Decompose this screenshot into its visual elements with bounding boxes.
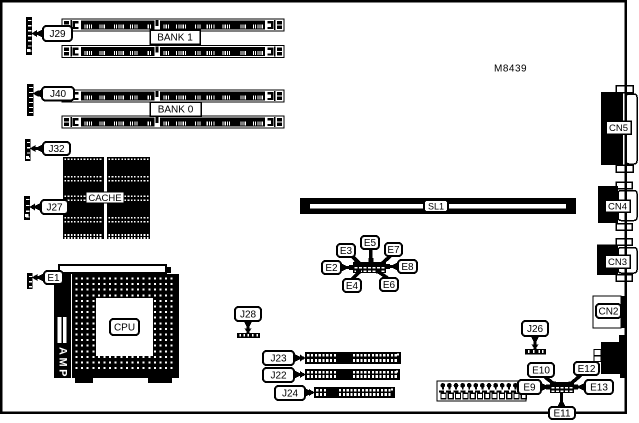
- svg-text:E3: E3: [340, 246, 353, 257]
- svg-text:CACHE: CACHE: [88, 193, 121, 204]
- svg-text:J40: J40: [50, 89, 67, 100]
- svg-text:M8439: M8439: [494, 64, 527, 75]
- svg-text:AMP: AMP: [57, 347, 69, 379]
- svg-text:E7: E7: [387, 245, 400, 256]
- svg-text:J23: J23: [270, 353, 287, 364]
- svg-text:E2: E2: [325, 263, 338, 274]
- svg-text:J22: J22: [270, 370, 287, 381]
- svg-text:E12: E12: [578, 364, 596, 375]
- svg-text:J27: J27: [46, 202, 63, 213]
- svg-text:SL1: SL1: [428, 201, 444, 211]
- svg-text:BANK 0: BANK 0: [158, 105, 194, 116]
- svg-text:J24: J24: [282, 388, 299, 399]
- svg-text:E8: E8: [401, 262, 414, 273]
- svg-text:CN3: CN3: [608, 257, 627, 268]
- svg-text:BANK 1: BANK 1: [157, 33, 193, 44]
- svg-text:J29: J29: [49, 29, 66, 40]
- svg-text:CN5: CN5: [609, 123, 628, 134]
- svg-text:E9: E9: [523, 382, 536, 393]
- svg-text:E13: E13: [590, 382, 608, 393]
- svg-text:CN2: CN2: [598, 306, 618, 317]
- svg-text:E10: E10: [532, 365, 550, 376]
- svg-text:E5: E5: [364, 238, 377, 249]
- svg-text:J26: J26: [527, 324, 544, 335]
- svg-text:E11: E11: [553, 408, 570, 419]
- svg-text:J32: J32: [48, 144, 65, 155]
- svg-text:CN4: CN4: [608, 202, 627, 213]
- svg-text:E6: E6: [383, 280, 396, 291]
- svg-text:J28: J28: [240, 309, 257, 320]
- svg-text:CPU: CPU: [114, 322, 135, 333]
- svg-text:E1: E1: [47, 273, 60, 284]
- svg-text:E4: E4: [346, 281, 359, 292]
